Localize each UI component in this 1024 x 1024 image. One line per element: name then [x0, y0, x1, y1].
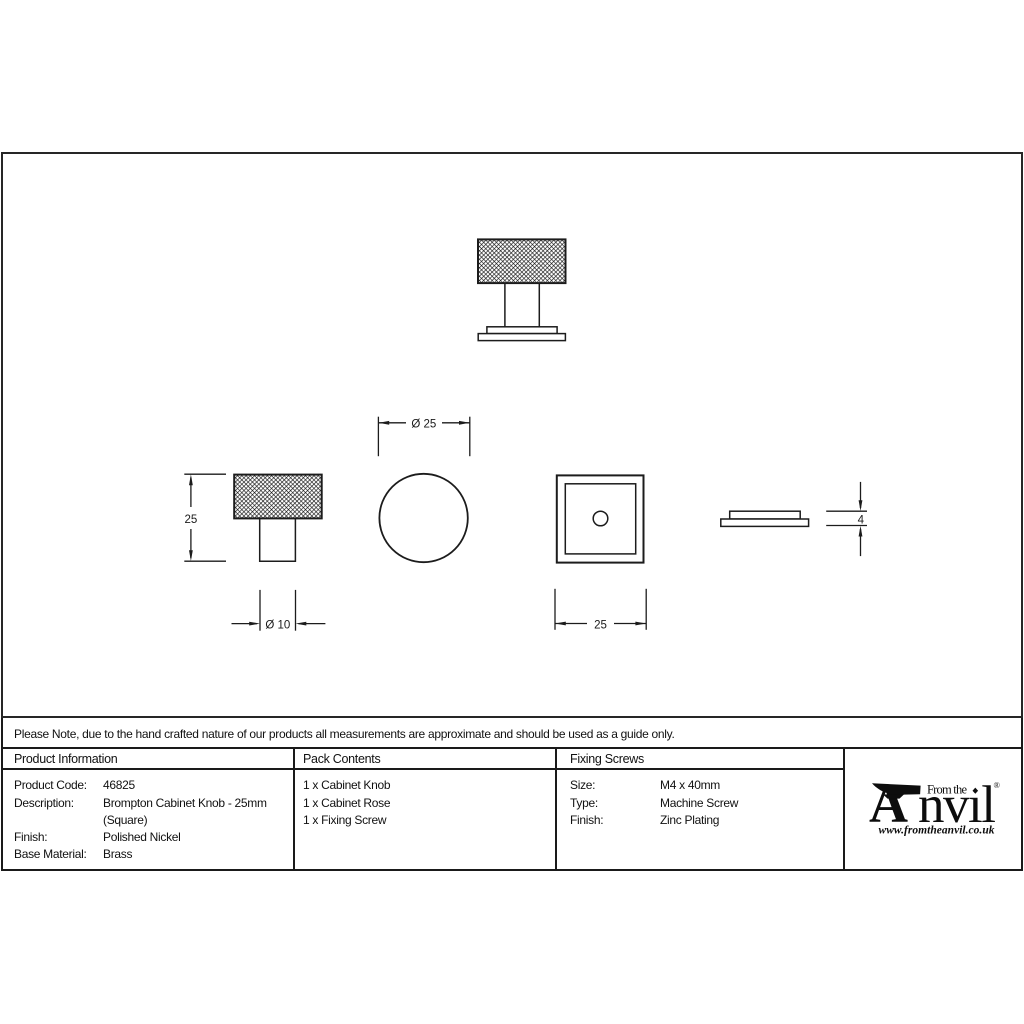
svg-text:®: ®: [994, 780, 1001, 790]
svg-text:Ø 25: Ø 25: [411, 419, 436, 431]
svg-text:www.fromtheanvil.co.uk: www.fromtheanvil.co.uk: [879, 825, 995, 837]
svg-text:Ø 10: Ø 10: [265, 620, 290, 632]
svg-text:25: 25: [594, 619, 607, 631]
svg-text:25: 25: [185, 514, 198, 526]
svg-text:From the: From the: [927, 783, 967, 797]
svg-text:4: 4: [858, 514, 865, 526]
